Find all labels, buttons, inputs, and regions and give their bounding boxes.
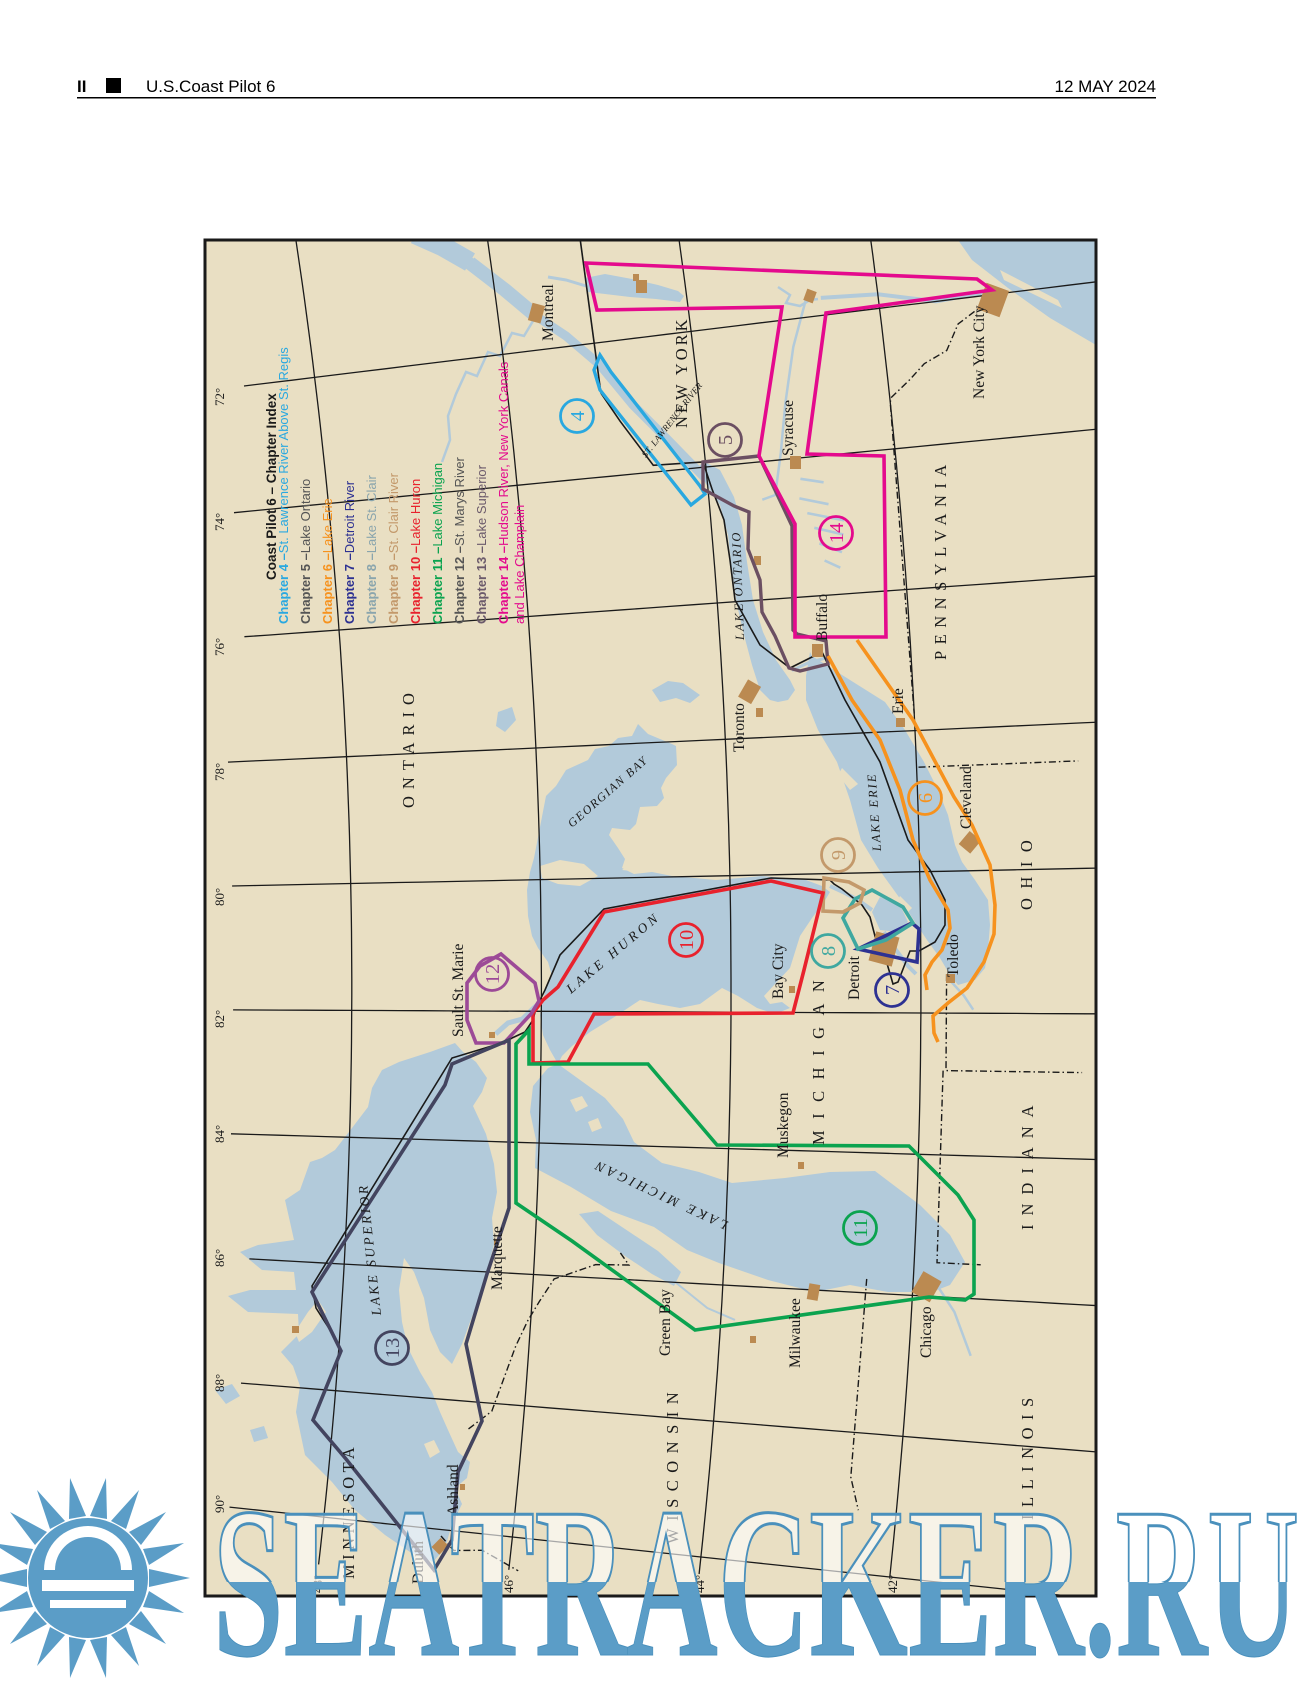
- svg-text:PENNSYLVANIA: PENNSYLVANIA: [931, 458, 950, 660]
- svg-text:13: 13: [382, 1338, 404, 1359]
- svg-text:6: 6: [915, 793, 937, 803]
- svg-text:14: 14: [826, 523, 848, 544]
- svg-text:5: 5: [715, 435, 737, 445]
- svg-text:and Lake Champlain: and Lake Champlain: [512, 505, 527, 624]
- svg-text:U.S.Coast Pilot 6: U.S.Coast Pilot 6: [146, 77, 275, 96]
- svg-text:ONTARIO: ONTARIO: [399, 686, 418, 808]
- svg-text:8: 8: [818, 946, 840, 956]
- svg-text:Toronto: Toronto: [731, 703, 748, 752]
- svg-text:Bay City: Bay City: [770, 943, 787, 999]
- svg-text:OHIO: OHIO: [1017, 831, 1036, 910]
- svg-text:Cleveland: Cleveland: [958, 766, 975, 829]
- svg-text:Chapter 14 –Hudson River, New: Chapter 14 –Hudson River, New York Canal…: [496, 361, 511, 624]
- svg-text:Chapter 6 –Lake Erie: Chapter 6 –Lake Erie: [320, 498, 335, 624]
- svg-text:11: 11: [850, 1218, 872, 1238]
- svg-text:80°: 80°: [212, 888, 227, 906]
- svg-text:Chapter 9 –St. Clair River: Chapter 9 –St. Clair River: [386, 472, 401, 624]
- svg-text:Chapter 7 –Detroit River: Chapter 7 –Detroit River: [342, 480, 357, 624]
- svg-text:Chapter 5 –Lake Ontario: Chapter 5 –Lake Ontario: [298, 479, 313, 624]
- svg-text:Detroit: Detroit: [846, 955, 863, 1000]
- svg-text:74°: 74°: [212, 513, 227, 531]
- svg-text:Buffalo: Buffalo: [814, 594, 831, 641]
- svg-text:Erie: Erie: [890, 688, 907, 714]
- svg-text:Milwaukee: Milwaukee: [787, 1298, 804, 1368]
- svg-text:Chapter 11 –Lake Michigan: Chapter 11 –Lake Michigan: [430, 463, 445, 624]
- svg-text:84°: 84°: [212, 1125, 227, 1143]
- svg-text:12: 12: [482, 964, 504, 985]
- svg-text:Chapter 12 –St. Marys River: Chapter 12 –St. Marys River: [452, 456, 467, 624]
- svg-text:Toledo: Toledo: [945, 934, 962, 977]
- svg-text:10: 10: [676, 930, 698, 951]
- svg-text:Chapter 4 –St. Lawrence River: Chapter 4 –St. Lawrence River Above St. …: [276, 347, 291, 624]
- svg-text:Montreal: Montreal: [540, 284, 557, 341]
- svg-text:88°: 88°: [212, 1374, 227, 1392]
- svg-text:II: II: [77, 77, 86, 96]
- svg-text:Chicago: Chicago: [918, 1306, 935, 1358]
- svg-text:Chapter 10 –Lake Huron: Chapter 10 –Lake Huron: [408, 479, 423, 624]
- svg-text:72°: 72°: [212, 388, 227, 406]
- svg-text:9: 9: [828, 850, 850, 860]
- svg-text:82°: 82°: [212, 1010, 227, 1028]
- svg-text:MICHIGAN: MICHIGAN: [809, 969, 828, 1145]
- svg-text:Green Bay: Green Bay: [657, 1289, 674, 1356]
- svg-text:76°: 76°: [212, 638, 227, 656]
- svg-text:12 MAY 2024: 12 MAY 2024: [1055, 77, 1156, 96]
- svg-text:Chapter 8 –Lake St. Clair: Chapter 8 –Lake St. Clair: [364, 474, 379, 624]
- svg-text:INDIANA: INDIANA: [1018, 1096, 1037, 1230]
- svg-text:4: 4: [567, 411, 589, 421]
- svg-text:86°: 86°: [212, 1249, 227, 1267]
- svg-text:Marquette: Marquette: [489, 1226, 506, 1290]
- svg-text:78°: 78°: [212, 763, 227, 781]
- svg-text:Syracuse: Syracuse: [780, 400, 797, 456]
- svg-text:New York City: New York City: [971, 305, 988, 399]
- svg-text:7: 7: [882, 985, 904, 995]
- svg-text:Muskegon: Muskegon: [775, 1092, 792, 1158]
- svg-text:Sault St. Marie: Sault St. Marie: [450, 943, 467, 1037]
- svg-text:Chapter 13 –Lake Superior: Chapter 13 –Lake Superior: [474, 464, 489, 624]
